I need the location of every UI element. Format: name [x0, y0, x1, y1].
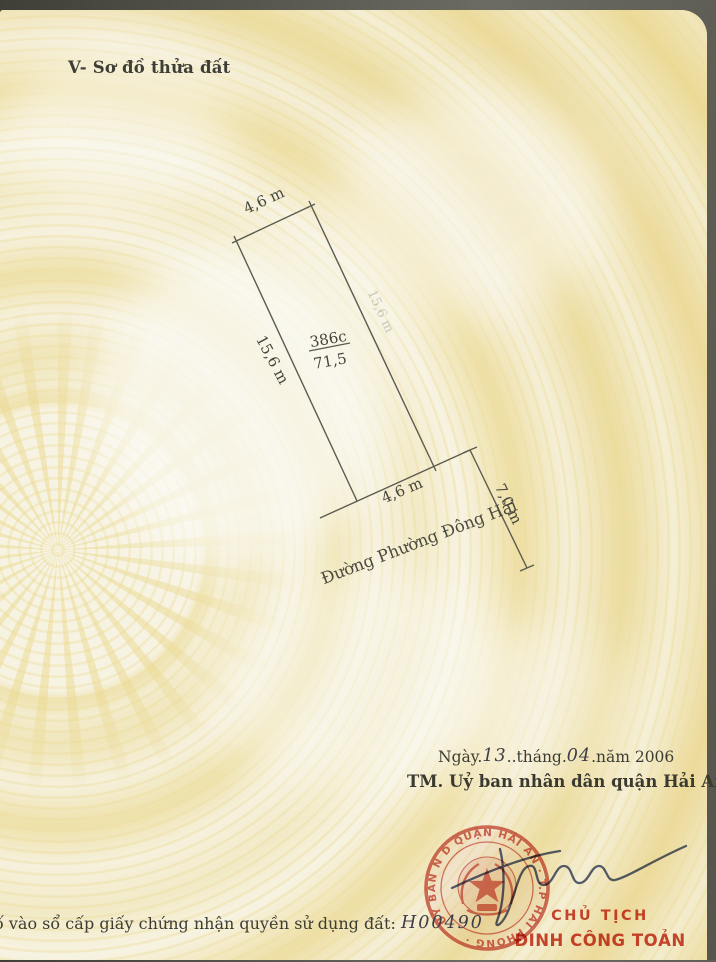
paper-highlight [90, 240, 390, 570]
certificate-page [0, 10, 707, 960]
signer-name: ĐINH CÔNG TOẢN [500, 931, 700, 950]
paper-highlight [330, 90, 610, 320]
issue-date-line: Ngày.13..tháng.04.năm 2006 [438, 747, 674, 767]
section-title: V- Sơ đồ thửa đất [68, 58, 230, 77]
handwritten-day: 13 [482, 746, 506, 766]
date-printed-middle: ..tháng. [507, 748, 567, 766]
date-printed-prefix: Ngày. [438, 748, 482, 766]
issuing-authority: TM. Uỷ ban nhân dân quận Hải An [407, 772, 716, 791]
handwritten-registry-number: H00490 [401, 913, 484, 933]
handwritten-month: 04 [567, 746, 591, 766]
registry-line: ố vào sổ cấp giấy chứng nhận quyền sử dụ… [0, 914, 484, 934]
signer-title: CHỦ TỊCH [540, 908, 660, 924]
date-printed-suffix: .năm 2006 [591, 748, 674, 766]
registry-label: ố vào sổ cấp giấy chứng nhận quyền sử dụ… [0, 914, 396, 933]
